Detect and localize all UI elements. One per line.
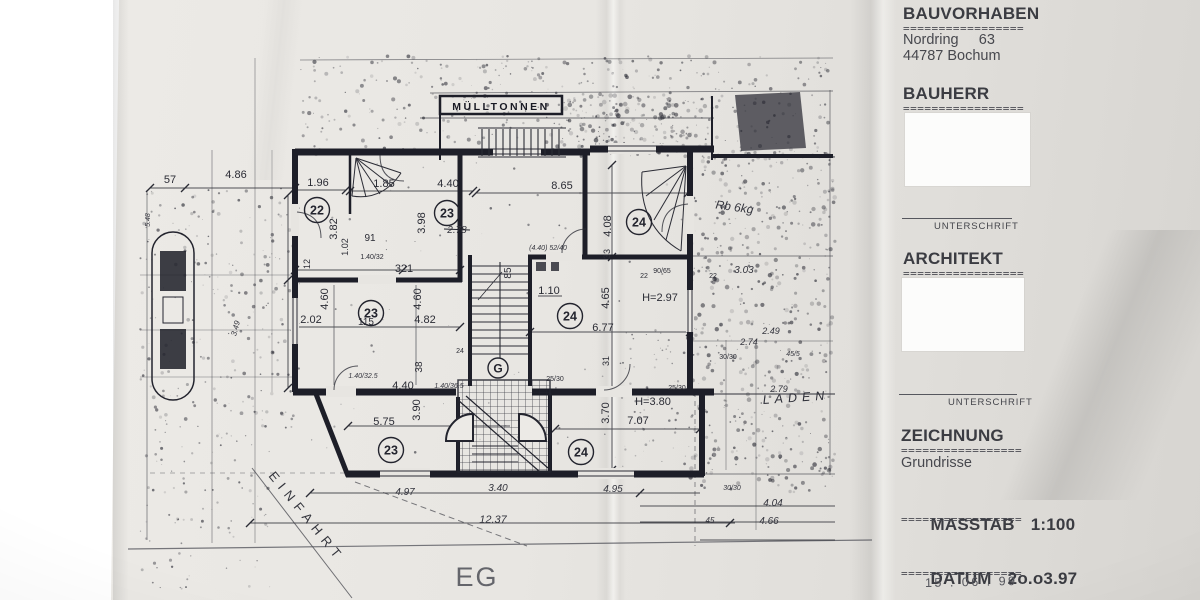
- signature-line: [899, 394, 1017, 395]
- dimension-label: 30/30: [723, 485, 741, 492]
- unterschrift-label: UNTERSCHRIFT: [948, 397, 1033, 408]
- einfahrt-label: EINFAHRT: [266, 468, 348, 565]
- dimension-label: H=3.80: [635, 396, 671, 408]
- dimension-label: 4.86: [225, 169, 246, 181]
- architekt-heading: ARCHITEKT: [903, 249, 1003, 269]
- dimension-label: 24: [456, 348, 464, 355]
- room-number: 23: [440, 207, 454, 221]
- room-number: 23: [364, 307, 378, 321]
- g-circle-label: G: [493, 362, 502, 376]
- zeichnung-value: Grundrisse: [901, 455, 972, 471]
- masstab-value: 1:100: [1031, 515, 1075, 534]
- photo-of-floorplan-sheet: 574.861.961.854.408.653.821.02913.982.78…: [0, 0, 1200, 600]
- dimension-label: 4.82: [414, 314, 435, 326]
- dimension-label: 8.65: [551, 180, 572, 192]
- redaction-box-architekt: [902, 278, 1024, 351]
- dimension-label: 25/30: [668, 385, 686, 392]
- dimension-label: 90/65: [653, 268, 671, 275]
- dimension-label: 4.08: [602, 215, 614, 236]
- dimension-label: 6.77: [592, 322, 613, 334]
- dimension-label: 4.40: [392, 380, 413, 392]
- dimension-label: 3.03: [734, 265, 754, 276]
- dimension-label: 4.95: [603, 484, 623, 495]
- dimension-label: 3.40: [488, 483, 508, 494]
- awning-left: [446, 414, 473, 441]
- zeichnung-heading: ZEICHNUNG: [901, 426, 1004, 446]
- dimension-label: 4.60: [412, 288, 424, 309]
- address-line2: 44787 Bochum: [903, 48, 1001, 64]
- dimension-label: 22: [709, 273, 717, 280]
- bauvorhaben-heading: BAUVORHABEN: [903, 4, 1039, 24]
- signature-line: [902, 218, 1012, 219]
- door-swing-arcs: [297, 155, 688, 390]
- dimension-label: 1.96: [307, 177, 328, 189]
- dimension-label: H=2.97: [642, 292, 678, 304]
- dimension-label: 1.40/36.5: [434, 383, 463, 390]
- dimension-label: 85: [503, 267, 514, 279]
- dimension-label: 4.65: [600, 287, 612, 308]
- dimension-label: 4.66: [759, 516, 779, 527]
- dimension-label: 3.49: [229, 319, 242, 337]
- dimension-label: 321: [395, 263, 413, 275]
- dimension-label: 1.02: [340, 238, 350, 256]
- dimension-label: 30/30: [719, 354, 737, 361]
- dimension-label: 2.74: [739, 337, 758, 347]
- winder-stairs: [352, 158, 686, 251]
- datum-handwritten: 15 . 06 . 99: [925, 574, 1018, 590]
- floor-label-eg: EG: [455, 562, 498, 592]
- dimension-label: 4.60: [319, 288, 331, 309]
- dimension-label: 22: [640, 273, 648, 280]
- address-line1: Nordring 63: [903, 32, 995, 48]
- room-number: 24: [563, 310, 577, 324]
- dimension-label: 4.97: [395, 487, 415, 498]
- room-number: 24: [632, 216, 646, 230]
- dimension-label: (4.40) 52/40: [529, 245, 567, 252]
- dimension-label: 4.40: [437, 178, 458, 190]
- dimension-label: 45/5: [786, 351, 800, 358]
- dimension-label: 45: [706, 516, 715, 525]
- dimension-label: 3.70: [600, 402, 612, 423]
- dimension-label: 12.37: [479, 514, 507, 526]
- bauherr-heading: BAUHERR: [903, 84, 989, 104]
- dimension-label: 33: [602, 249, 612, 259]
- dimension-label: 2.78: [446, 225, 467, 236]
- dimension-label: 1.40/32: [360, 254, 383, 261]
- dimension-label: 12: [302, 259, 312, 269]
- dimension-label: 3.98: [416, 212, 428, 233]
- divider-line: =================: [901, 513, 1022, 526]
- room-number: 24: [574, 446, 588, 460]
- dimension-label: 2.49: [761, 326, 780, 336]
- dimension-label: 1.85: [373, 178, 394, 190]
- staircase: [472, 128, 566, 358]
- redaction-box-bauherr: [905, 113, 1030, 186]
- room-number: 23: [384, 444, 398, 458]
- dimension-label: 5.75: [373, 416, 394, 428]
- dimension-label: 1.10: [538, 285, 559, 297]
- neighbor-building-mass: [735, 92, 806, 151]
- dimension-label: 25/30: [546, 376, 564, 383]
- dimension-label: 38: [414, 361, 425, 373]
- dimension-label: 3.82: [328, 218, 340, 239]
- unterschrift-label: UNTERSCHRIFT: [934, 221, 1019, 232]
- room-number: 22: [310, 204, 324, 218]
- dimension-label: 3.90: [411, 399, 423, 420]
- dimension-label: 91: [364, 233, 376, 244]
- dimension-label: 1.40/32.5: [348, 373, 377, 380]
- muelltonnen-label: MÜLLTONNEN: [452, 100, 550, 113]
- dimension-label: 57: [164, 174, 176, 186]
- dimension-label: 2.02: [300, 314, 321, 326]
- dimension-label: 4.04: [763, 498, 783, 509]
- dimension-label: 5.48: [145, 213, 152, 227]
- dimension-label: 7.07: [627, 415, 648, 427]
- dimension-label: 31: [601, 356, 611, 366]
